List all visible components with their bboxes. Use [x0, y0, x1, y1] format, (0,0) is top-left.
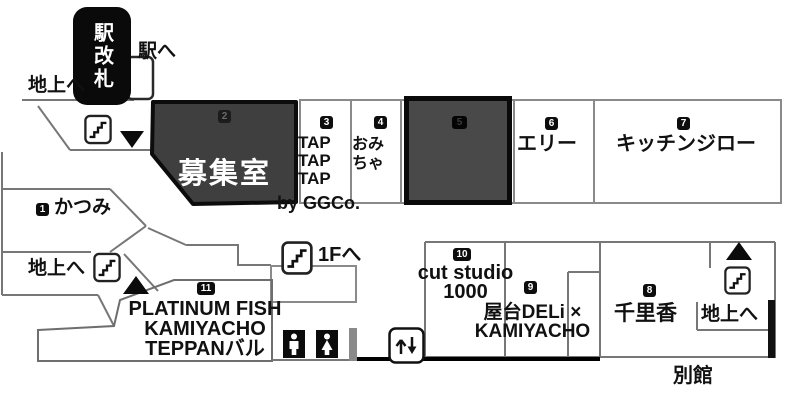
unit-1-number-badge: 1 [36, 203, 49, 216]
direction-triangle-up-right-icon [726, 242, 752, 260]
unit-2-number-badge: 2 [218, 110, 231, 123]
unit-9-name: 屋台DELi × KAMIYACHO [455, 303, 610, 341]
unit-3-name: TAP TAP TAP [298, 134, 331, 188]
unit-6-name: エリー [517, 134, 577, 155]
unit-3-number-badge: 3 [320, 116, 333, 129]
unit-7-number-badge: 7 [677, 117, 690, 130]
unit-5-number-badge: 5 [452, 116, 467, 129]
to-1f-sign: 1Fへ [318, 245, 361, 266]
unit-10-name: cut studio 1000 [408, 264, 523, 302]
elevator-icon [388, 327, 425, 369]
unit-8-number-badge: 8 [643, 284, 656, 297]
direction-triangle-down-icon [120, 131, 144, 148]
unit-9-number-badge: 9 [524, 281, 537, 294]
annex-sign: 別館 [673, 366, 713, 387]
wall-segment [349, 328, 357, 361]
stairs-icon-1f [281, 241, 313, 275]
unit-11-name: PLATINUM FISH KAMIYACHO TEPPANバル [115, 299, 295, 359]
restroom-female-icon [316, 330, 338, 363]
stairs-icon-lower-left [93, 252, 121, 283]
to-ground-sign-lower-left: 地上へ [28, 259, 85, 279]
unit-2-name: 募集室 [157, 150, 292, 192]
dark-room-unit-5: 5 [404, 96, 512, 205]
to-station-sign: 駅へ [138, 42, 176, 62]
stairs-icon-lower-right [724, 265, 751, 296]
unit-6-number-badge: 6 [545, 117, 558, 130]
unit-4-name: おみ ちゃ [352, 135, 384, 173]
unit-1-name: かつみ [54, 198, 111, 218]
unit-4-number-badge: 4 [374, 116, 387, 129]
stairs-icon-upper-left [84, 114, 112, 145]
unit-11-number-badge: 11 [197, 282, 215, 295]
unit-3-name-suffix: by GGCo. [277, 194, 360, 213]
unit-8-name: 千里香 [614, 303, 677, 325]
to-ground-sign-lower-right: 地上へ [701, 305, 758, 325]
floor-map: 5 駅改札 駅へ 地上へ 1 かつみ 地上へ 2 募集室 3 TAP TAP T… [0, 0, 787, 401]
unit-10-number-badge: 10 [453, 248, 471, 261]
to-ground-sign-top-left: 地上へ [28, 76, 85, 96]
direction-triangle-up-left-icon [123, 276, 149, 294]
unit-7-name: キッチンジロー [616, 134, 756, 155]
